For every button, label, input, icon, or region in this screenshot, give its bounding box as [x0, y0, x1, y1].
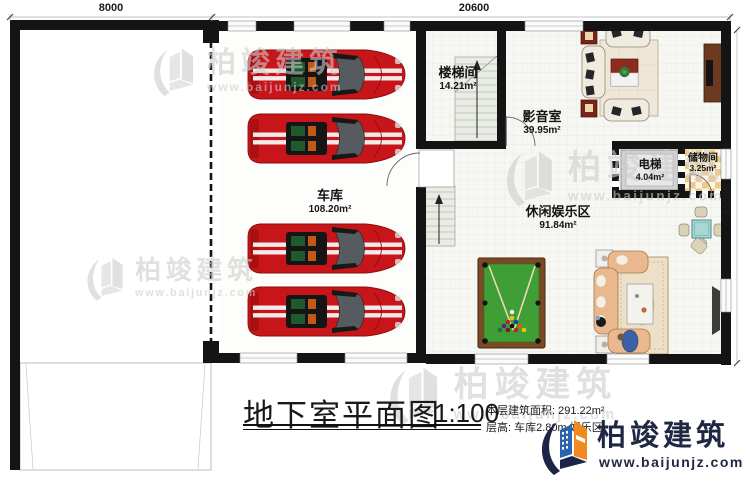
title-underline — [243, 424, 481, 426]
floorplan-image: 柏竣建筑 www.baijunjz.com 柏竣建筑 www.baijunjz.… — [0, 0, 750, 483]
room-label-garage: 车库 108.20m² — [309, 189, 352, 215]
brand-website: www.baijunjz.com — [599, 455, 744, 469]
wall-tv-icon — [712, 286, 720, 335]
brand-name: 柏竣建筑 — [597, 422, 729, 451]
room-label-storage: 储物间 3.25m² — [688, 153, 718, 174]
dimension-right-side: 15500 — [721, 185, 733, 216]
storage-threshold — [685, 191, 723, 198]
room-label-elevator: 电梯 4.04m² — [636, 159, 665, 182]
tv-icon — [706, 60, 713, 86]
room-label-stairwell: 楼梯间 14.21m² — [438, 66, 477, 92]
pool-table — [478, 258, 545, 348]
title-underline-thin — [243, 429, 481, 430]
room-label-media-room: 影音室 39.95m² — [522, 110, 561, 136]
dimension-top-right: 20600 — [218, 2, 730, 14]
staircase-lower — [424, 186, 455, 246]
courtyard-floor — [20, 30, 211, 355]
room-label-leisure: 休闲娱乐区 91.84m² — [525, 205, 590, 231]
brand-logo-icon — [534, 413, 596, 483]
driveway-ramp — [20, 363, 211, 470]
garage-door-leaf — [419, 150, 454, 187]
dimension-top-left: 8000 — [10, 2, 212, 14]
